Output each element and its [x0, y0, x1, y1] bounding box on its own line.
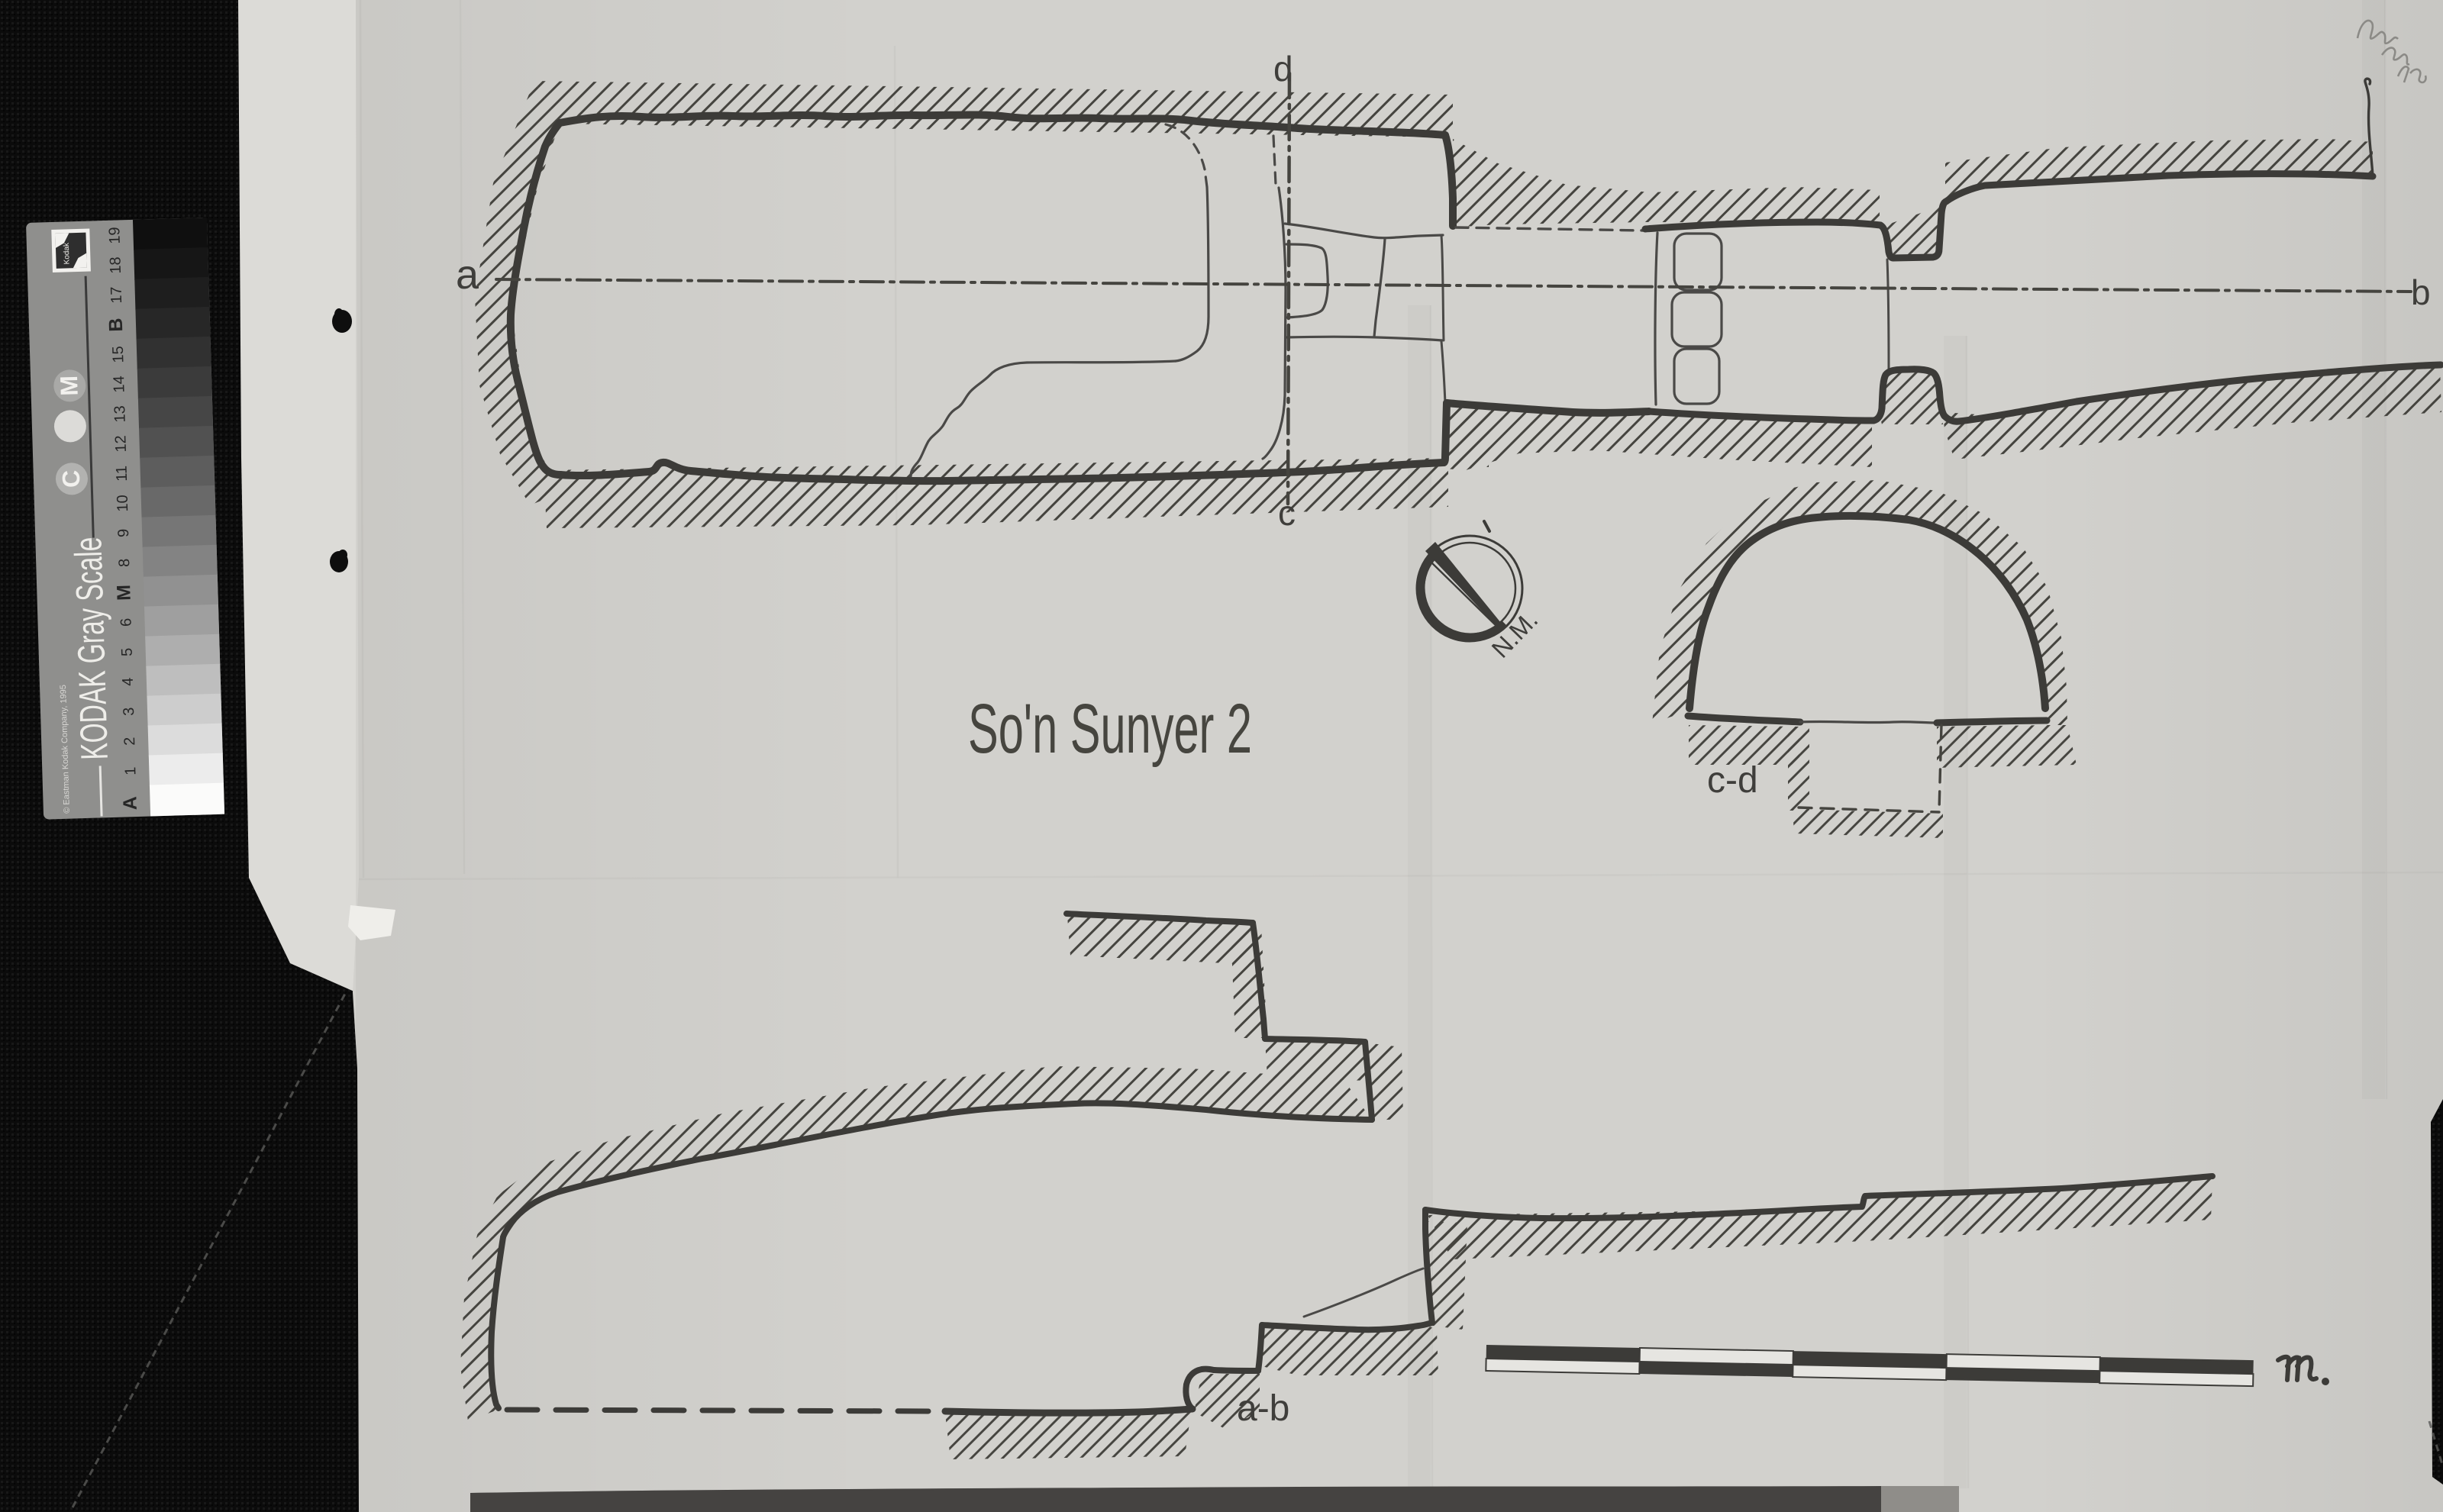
svg-text:5: 5: [119, 647, 136, 656]
svg-text:3: 3: [121, 707, 137, 716]
svg-text:6: 6: [118, 617, 134, 627]
svg-text:So'n Sunyer 2: So'n Sunyer 2: [968, 690, 1252, 768]
svg-text:10: 10: [115, 495, 132, 512]
svg-text:b: b: [2411, 272, 2431, 312]
svg-text:17: 17: [108, 286, 126, 304]
svg-text:d: d: [1273, 49, 1293, 89]
svg-text:a: a: [456, 252, 479, 298]
svg-text:A: A: [119, 796, 141, 811]
svg-text:12: 12: [112, 435, 130, 453]
svg-text:18: 18: [107, 256, 124, 274]
svg-text:c-d: c-d: [1707, 760, 1758, 801]
svg-text:8: 8: [116, 558, 133, 567]
svg-text:M: M: [55, 376, 83, 397]
svg-text:a-b: a-b: [1237, 1388, 1289, 1429]
svg-text:11: 11: [113, 466, 131, 482]
svg-text:Kodak: Kodak: [63, 242, 72, 265]
svg-text:14: 14: [111, 376, 128, 393]
svg-text:9: 9: [115, 528, 132, 537]
svg-text:15: 15: [110, 346, 127, 363]
svg-text:4: 4: [120, 677, 137, 686]
svg-text:19: 19: [106, 227, 124, 244]
svg-text:2: 2: [121, 737, 138, 746]
svg-text:M: M: [113, 585, 135, 601]
svg-text:c: c: [1278, 493, 1296, 533]
svg-text:C: C: [57, 469, 86, 488]
svg-text:13: 13: [111, 405, 129, 423]
svg-text:1: 1: [122, 766, 139, 775]
svg-text:KODAK Gray Scale: KODAK Gray Scale: [66, 537, 116, 761]
svg-text:B: B: [105, 318, 127, 332]
